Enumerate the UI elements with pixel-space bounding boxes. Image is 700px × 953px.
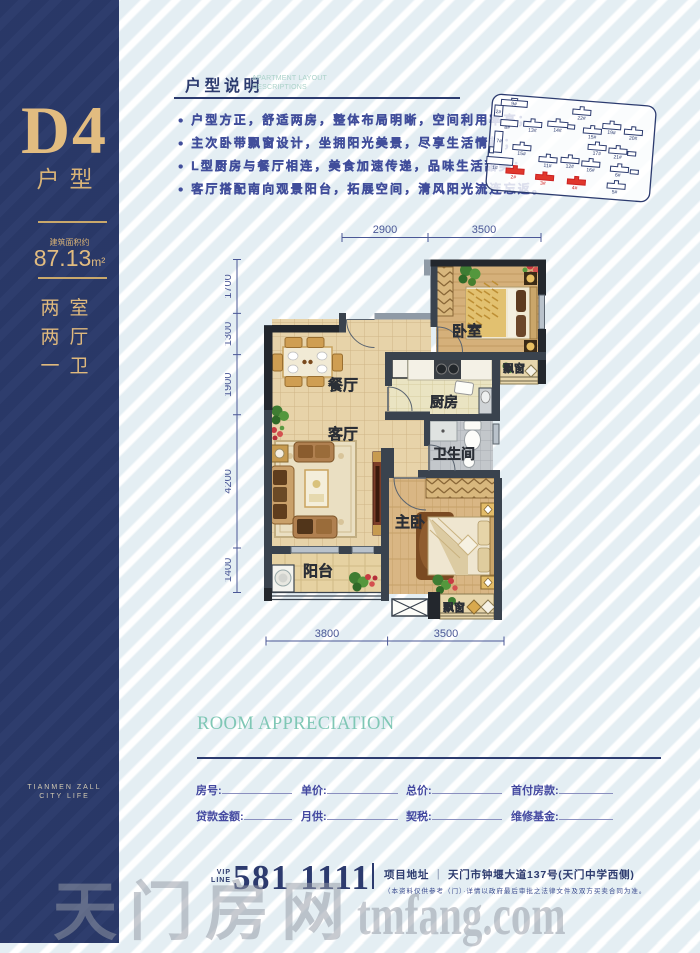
svg-text:11#: 11# [543, 163, 552, 170]
svg-text:飘窗: 飘窗 [503, 361, 525, 375]
svg-text:客厅: 客厅 [327, 425, 358, 443]
svg-text:19#: 19# [607, 130, 616, 137]
svg-text:13#: 13# [528, 128, 537, 135]
svg-text:8#: 8# [504, 125, 510, 131]
svg-text:卧室: 卧室 [452, 322, 482, 340]
svg-text:22#: 22# [577, 115, 586, 122]
svg-text:16#: 16# [586, 167, 595, 174]
svg-text:3500: 3500 [434, 628, 458, 640]
svg-text:4200: 4200 [225, 469, 234, 493]
svg-text:20#: 20# [629, 136, 638, 143]
svg-text:3#: 3# [540, 181, 546, 187]
svg-text:主卧: 主卧 [395, 513, 425, 531]
svg-text:餐厅: 餐厅 [328, 376, 358, 394]
svg-text:9#: 9# [511, 101, 517, 107]
svg-text:17#: 17# [592, 151, 601, 158]
svg-text:2900: 2900 [373, 224, 397, 236]
svg-text:15#: 15# [588, 134, 597, 141]
svg-text:15#: 15# [517, 151, 526, 158]
svg-text:5#: 5# [611, 189, 617, 195]
svg-text:2#: 2# [510, 174, 516, 180]
svg-text:卫生间: 卫生间 [433, 446, 475, 462]
svg-text:12#: 12# [565, 164, 574, 171]
svg-text:飘窗: 飘窗 [443, 600, 465, 614]
svg-text:1900: 1900 [225, 372, 234, 396]
svg-text:1700: 1700 [225, 274, 234, 298]
svg-text:3500: 3500 [472, 224, 496, 236]
svg-text:1300: 1300 [225, 322, 234, 346]
svg-text:14#: 14# [553, 128, 562, 135]
svg-text:21#: 21# [613, 154, 622, 161]
svg-text:2#: 2# [495, 109, 501, 115]
svg-text:1#: 1# [492, 165, 498, 171]
svg-text:4#: 4# [572, 185, 578, 191]
svg-text:6#: 6# [615, 173, 621, 179]
svg-text:阳台: 阳台 [303, 562, 333, 580]
svg-text:厨房: 厨房 [430, 394, 458, 410]
svg-text:1400: 1400 [225, 558, 234, 582]
svg-text:7#: 7# [496, 138, 502, 144]
svg-text:3800: 3800 [315, 628, 339, 640]
